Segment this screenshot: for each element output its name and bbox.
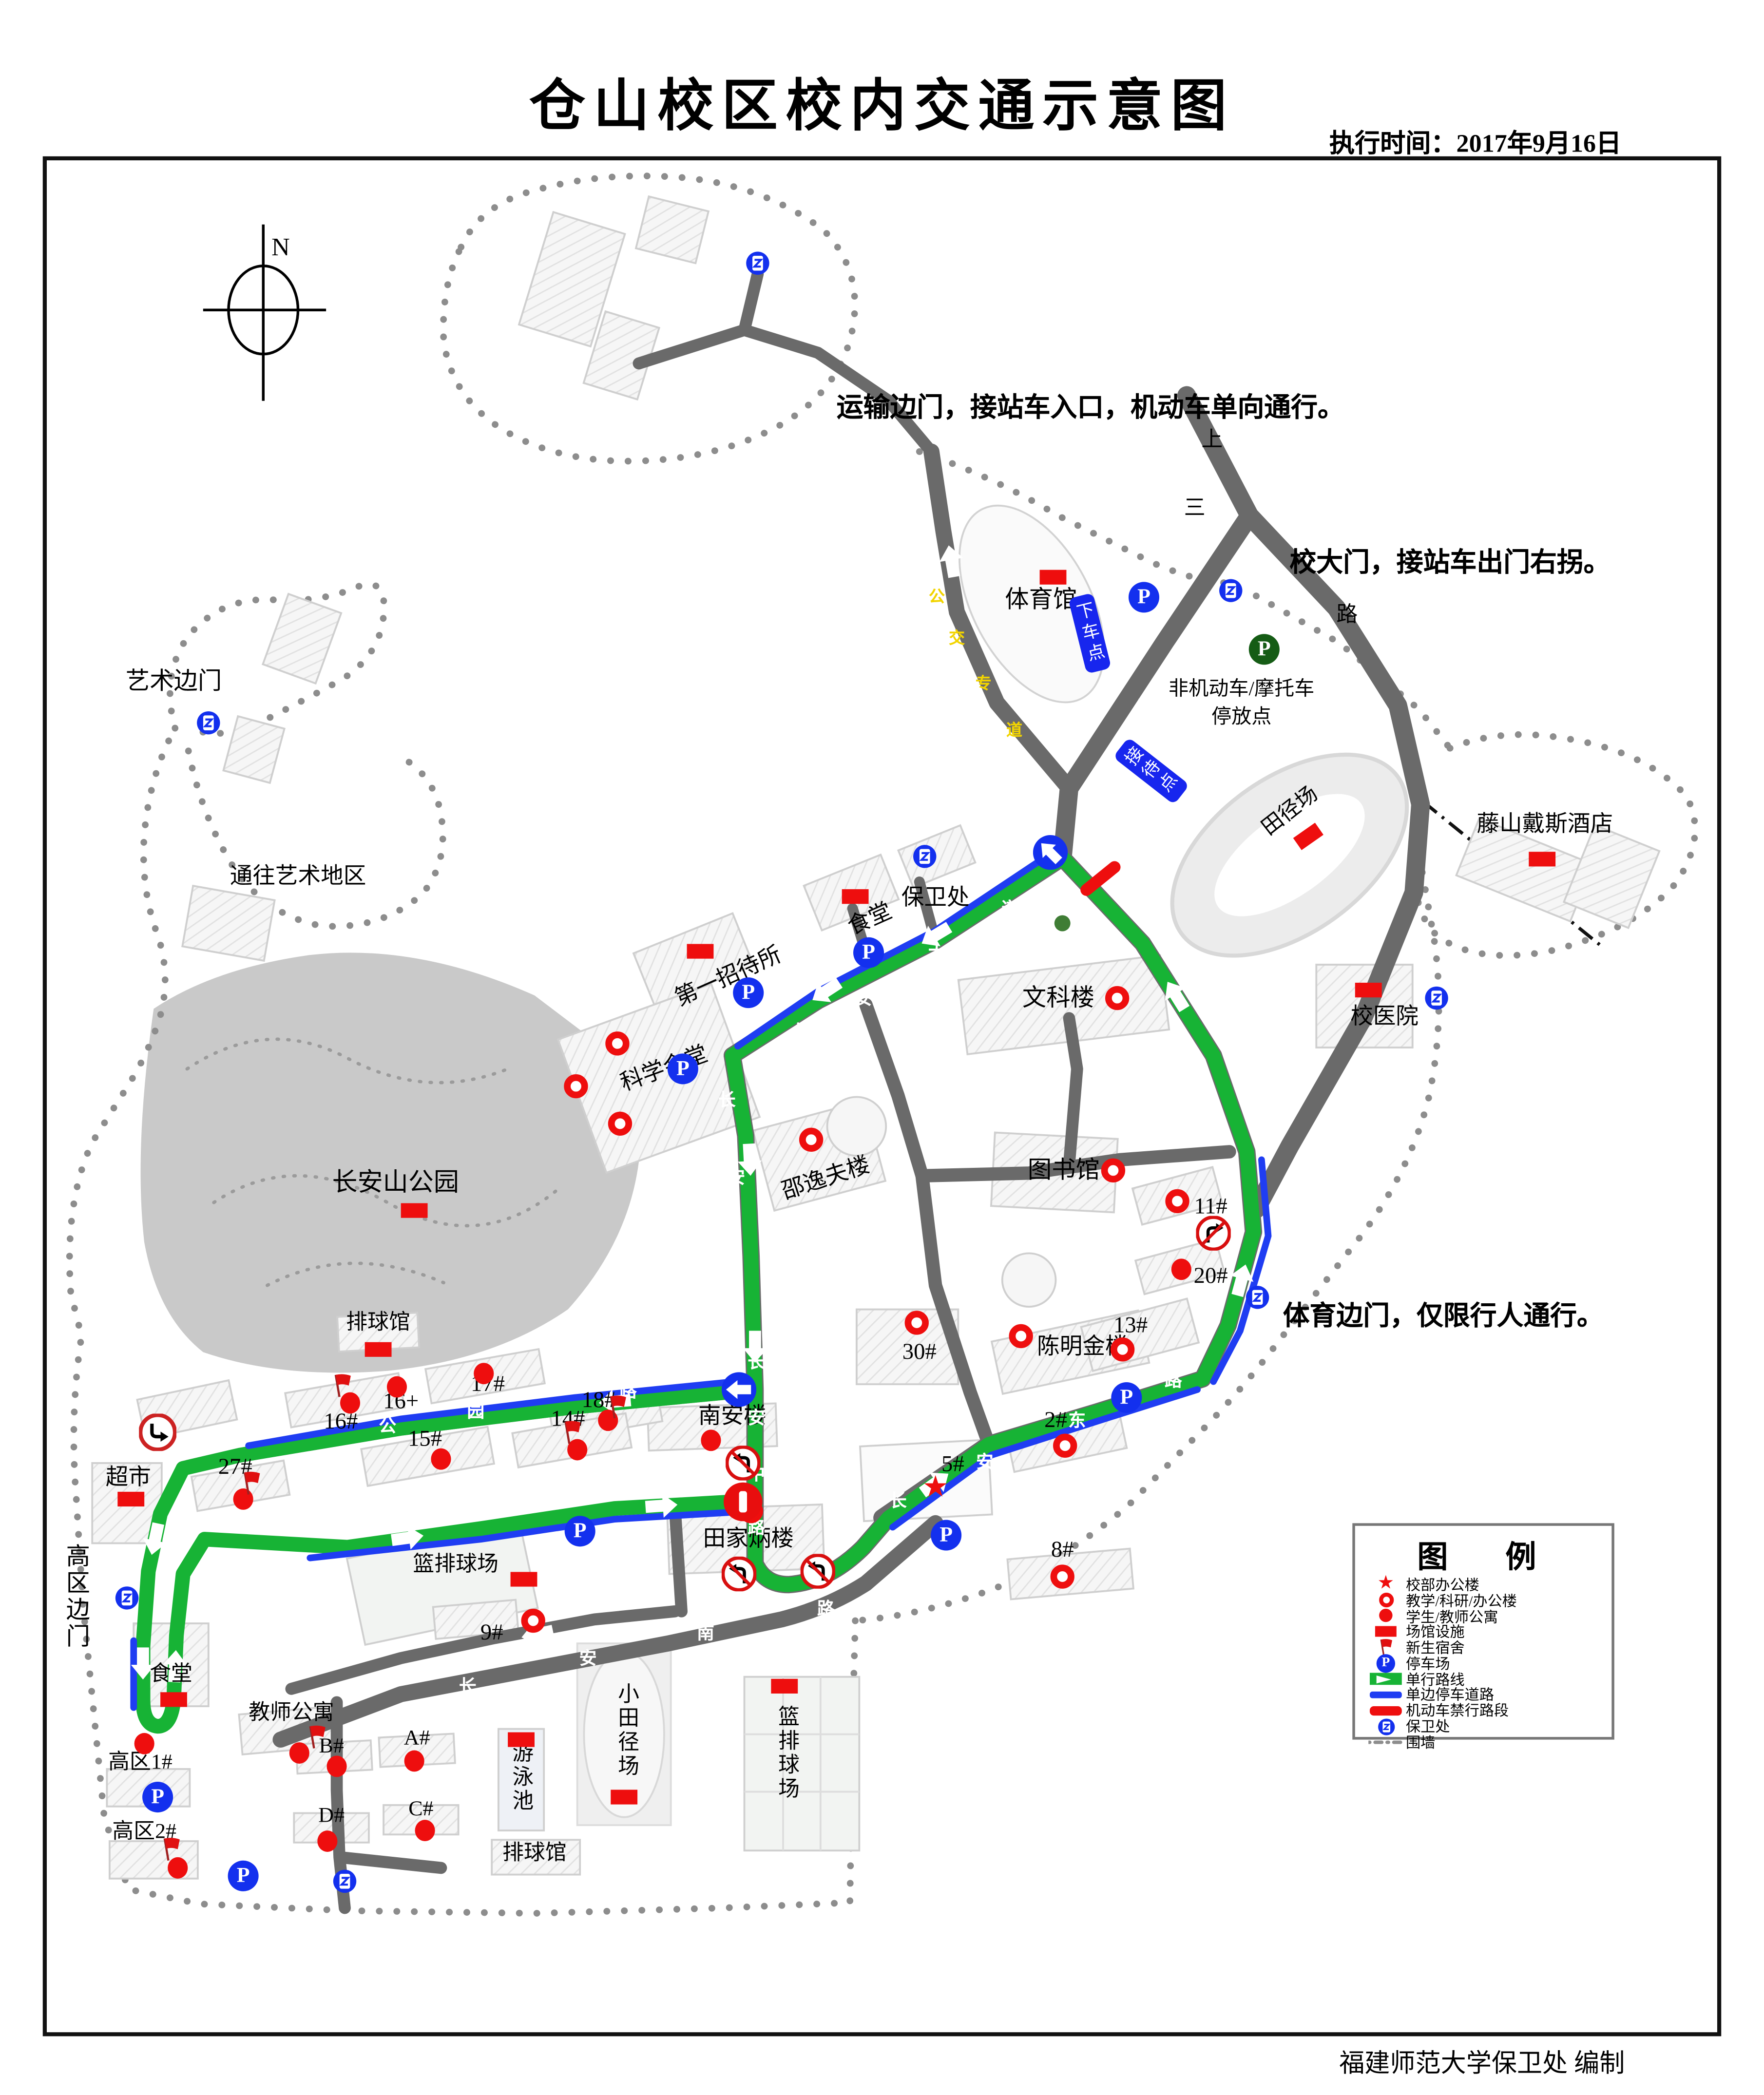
no-left-turn-sign-icon: [726, 1446, 760, 1480]
credit-line: 福建师范大学保卫处 编制: [1339, 2044, 1625, 2080]
road-char: 公: [379, 1411, 396, 1437]
parking-icon: P: [228, 1861, 259, 1891]
unit-gao1: 高区1#: [108, 1752, 173, 1775]
teaching-building-icon: [1111, 1337, 1134, 1361]
security-office-icon: [913, 844, 937, 868]
freshman-flag-icon: [160, 1836, 182, 1862]
teaching-building-icon: [1165, 1189, 1189, 1213]
gym-label: 体育馆: [1005, 587, 1077, 612]
sports-gate-note: 体育边门，仅限行人通行。: [1283, 1303, 1604, 1332]
teaching-building-icon: [1379, 1593, 1393, 1607]
apartment-icon: [701, 1429, 721, 1451]
small-track-label: 小田径场: [613, 1682, 635, 1778]
legend-title: 图 例: [1355, 1531, 1612, 1577]
security-office-icon: [1219, 578, 1243, 602]
road-char: 大: [928, 939, 946, 964]
road-char: 安: [748, 1404, 765, 1429]
unit-C: C#: [408, 1799, 433, 1822]
no-left-turn-sign-icon: [801, 1554, 835, 1588]
parking-icon: P: [733, 977, 764, 1008]
wenke-label: 文科楼: [1022, 986, 1094, 1011]
legend-row: 机动车禁行路段: [1366, 1703, 1612, 1718]
security-hq-label: 保卫处: [901, 886, 970, 910]
teaching-building-icon: [1009, 1324, 1033, 1348]
volleyball1-label: 排球馆: [346, 1313, 410, 1335]
no-right-turn-sign-icon: [1196, 1216, 1230, 1251]
hotel-label: 藤山戴斯酒店: [1476, 813, 1613, 837]
courts-h-label: 篮排球场: [413, 1555, 499, 1577]
parking-icon: P: [142, 1782, 173, 1812]
parking-icon: P: [931, 1520, 961, 1550]
volleyball2-label: 排球馆: [502, 1843, 567, 1866]
roadside-parking-icon: [1370, 1692, 1402, 1697]
courts-v-label: 篮排球场: [773, 1705, 796, 1801]
road-char: 道: [1006, 718, 1022, 741]
one-way-sign-icon: [1033, 835, 1068, 870]
teaching-building-icon: [1053, 1434, 1077, 1458]
unit-30: 30#: [902, 1340, 937, 1364]
security-office-icon: [196, 711, 220, 735]
teaching-building-icon: [1051, 1564, 1074, 1588]
canteen2-label: 食堂: [150, 1664, 192, 1687]
motorcycle-parking-icon: P: [1249, 634, 1280, 665]
road-char: 青: [432, 1496, 450, 1521]
nonmotor-parking-label1: 非机动车/摩托车: [1169, 680, 1314, 701]
road-char: 上: [1201, 421, 1223, 453]
apartment-icon: [415, 1820, 435, 1841]
freshman-flag-icon: [607, 1394, 628, 1420]
main-gate-note: 校大门，接站车出门右拐。: [1289, 550, 1610, 578]
legend-label: 围墙: [1406, 1732, 1435, 1753]
apartment-icon: [404, 1751, 424, 1772]
road-char: 安: [855, 984, 872, 1009]
pool-label: 游泳池: [507, 1741, 530, 1813]
teaching-building-icon: [1105, 986, 1129, 1010]
road-char: 路: [590, 1463, 608, 1488]
parking-letter: P: [151, 1786, 164, 1809]
legend-box: 图 例 ★校部办公楼 教学/科研/办公楼 学生/教师公寓 场馆设施 新生宿舍 P…: [1352, 1523, 1614, 1739]
parking-letter: P: [676, 1058, 690, 1081]
parking-letter: P: [940, 1524, 953, 1547]
freshman-flag-icon: [306, 1724, 327, 1750]
parking-letter: P: [237, 1865, 250, 1887]
teaching-building-icon: [608, 1112, 632, 1136]
parking-icon: P: [668, 1053, 698, 1084]
venue-icon: [117, 1492, 144, 1506]
venue-icon: [842, 889, 869, 904]
venue-icon: [511, 1572, 537, 1586]
parking-icon: P: [853, 937, 884, 968]
security-office-icon: [115, 1586, 139, 1610]
road-char: 安: [728, 1163, 745, 1188]
venue-icon: [401, 1203, 428, 1218]
security-office-icon: [746, 251, 769, 275]
freshman-flag-icon: [241, 1470, 262, 1496]
teaching-building-icon: [905, 1311, 929, 1334]
one-way-route-icon: [1370, 1673, 1402, 1685]
parking-letter: P: [862, 941, 875, 964]
security-office-icon: [1246, 1285, 1269, 1309]
apartment-icon: [474, 1363, 494, 1384]
road-char: 公: [929, 585, 945, 608]
road-char: 长: [793, 1017, 811, 1043]
to-art-label: 通往艺术地区: [230, 865, 366, 889]
campus-traffic-map: 仓山校区校内交通示意图 执行时间：2017年9月16日 福建师范大学保卫处 编制…: [0, 0, 1764, 2095]
legend-row: P停车场: [1366, 1656, 1612, 1671]
no-left-turn-sign-icon: [722, 1557, 756, 1591]
venue-icon: [160, 1692, 187, 1707]
apartment-icon: [431, 1448, 451, 1470]
venue-icon: [687, 944, 714, 959]
hospital-label: 校医院: [1350, 1005, 1419, 1028]
apartment-icon: [134, 1733, 154, 1754]
parking-icon: P: [565, 1516, 595, 1546]
road-char: 路: [817, 1595, 835, 1620]
road-char: 长: [748, 1348, 765, 1373]
unit-2: 2#: [1044, 1409, 1067, 1432]
parking-icon: P: [1129, 582, 1159, 612]
freshman-flag-icon: [331, 1373, 353, 1398]
apartment-icon: [1379, 1609, 1392, 1622]
page-title: 仓山校区校内交通示意图: [529, 61, 1235, 142]
apartment-icon: [387, 1376, 407, 1398]
parking-letter: P: [1120, 1386, 1133, 1409]
security-office-icon: [1377, 1718, 1395, 1735]
road-char: 东: [1069, 1406, 1086, 1431]
unit-11: 11#: [1194, 1195, 1227, 1219]
road-char: 园: [467, 1397, 484, 1422]
library-label: 图书馆: [1028, 1158, 1100, 1183]
one-way-sign-icon: [722, 1372, 756, 1407]
venue-icon: [1355, 983, 1382, 997]
road-char: 交: [949, 626, 965, 649]
road-char: 安: [579, 1644, 597, 1670]
venue-icon: [1375, 1626, 1397, 1637]
road-char: 华: [530, 1480, 547, 1505]
unit-A: A#: [404, 1729, 430, 1751]
teaching-building-icon: [1101, 1159, 1125, 1182]
compass-n-label: N: [271, 235, 290, 262]
venue-icon: [508, 1733, 535, 1747]
unit-D: D#: [318, 1806, 345, 1828]
unit-13: 13#: [1113, 1314, 1148, 1337]
security-office-icon: [333, 1869, 357, 1893]
teaching-building-icon: [521, 1609, 545, 1633]
venue-icon: [1529, 852, 1555, 866]
parking-letter: P: [1258, 638, 1271, 661]
no-entry-sign-icon: [723, 1482, 763, 1522]
unit-20: 20#: [1194, 1264, 1228, 1288]
venue-icon: [611, 1790, 637, 1804]
road-char: 路: [1336, 596, 1358, 628]
apartment-icon: [327, 1756, 347, 1777]
teaching-building-icon: [564, 1074, 588, 1098]
road-char: 长: [889, 1486, 907, 1512]
legend-row: 新生宿舍: [1366, 1639, 1612, 1655]
parking-letter: P: [742, 981, 755, 1004]
road-char: 长: [459, 1672, 477, 1697]
hq-star-icon: ★: [1378, 1575, 1394, 1594]
unit-8: 8#: [1051, 1538, 1074, 1562]
venue-icon: [365, 1342, 392, 1357]
road-char: 道: [1001, 895, 1019, 920]
park-label: 长安山公园: [332, 1170, 459, 1197]
exec-time: 执行时间：2017年9月16日: [1329, 124, 1621, 160]
venue-icon: [771, 1679, 798, 1694]
unit-16: 16#: [324, 1409, 358, 1433]
road-char: 路: [1165, 1366, 1182, 1391]
legend-row: 学生/教师公寓: [1366, 1608, 1612, 1624]
road-char: 安: [976, 1447, 994, 1473]
apartment-icon: [317, 1830, 337, 1852]
freshman-flag-icon: [561, 1420, 583, 1445]
teaching-building-icon: [605, 1031, 629, 1055]
parking-icon: P: [1377, 1654, 1395, 1673]
security-office-icon: [1424, 986, 1448, 1010]
highzone-gate-label: 高区边门: [63, 1543, 89, 1650]
art-gate-label: 艺术边门: [126, 669, 222, 694]
road-char: 三: [1184, 489, 1206, 521]
venue-icon: [1040, 570, 1067, 585]
wall-line-icon: [1368, 1738, 1403, 1746]
unit-15: 15#: [408, 1427, 442, 1451]
unit-9: 9#: [480, 1621, 503, 1645]
transport-gate-note: 运输边门，接站车入口，机动车单向通行。: [837, 395, 1344, 423]
road-char: 南: [697, 1619, 714, 1644]
turn-direction-sign-icon: [139, 1413, 176, 1451]
nonmotor-parking-label2: 停放点: [1211, 708, 1271, 729]
parking-letter: P: [1137, 586, 1150, 609]
supermarket-label: 超市: [106, 1466, 151, 1490]
teacher-apt-label: 教师公寓: [249, 1703, 334, 1725]
apartment-icon: [1171, 1258, 1191, 1280]
road-char: 长: [718, 1086, 736, 1111]
hq-star-icon: ★: [922, 1472, 949, 1502]
parking-letter: P: [574, 1520, 587, 1543]
teaching-building-icon: [799, 1128, 823, 1152]
parking-icon: P: [1111, 1382, 1142, 1413]
motor-ban-icon: [1370, 1706, 1402, 1715]
legend-row: 围墙: [1366, 1734, 1612, 1750]
road-char: 专: [976, 671, 992, 694]
